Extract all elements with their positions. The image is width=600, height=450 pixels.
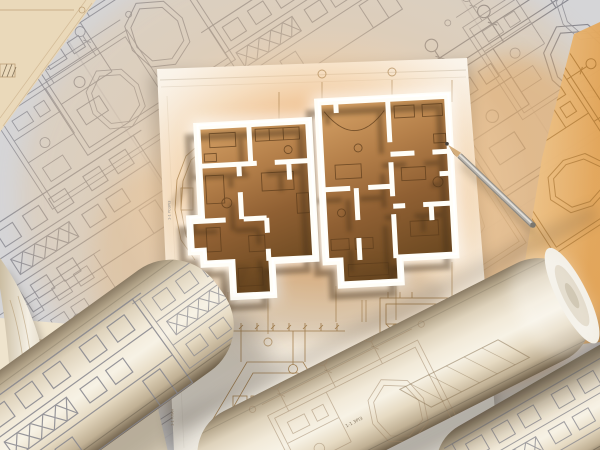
scene-canvas: 1-1 РОЗРІЗ 1-1 ПЛАН	[0, 0, 600, 450]
blueprint-scene: 1-1 РОЗРІЗ 1-1 ПЛАН	[0, 0, 600, 450]
pencil-lead	[445, 142, 449, 146]
